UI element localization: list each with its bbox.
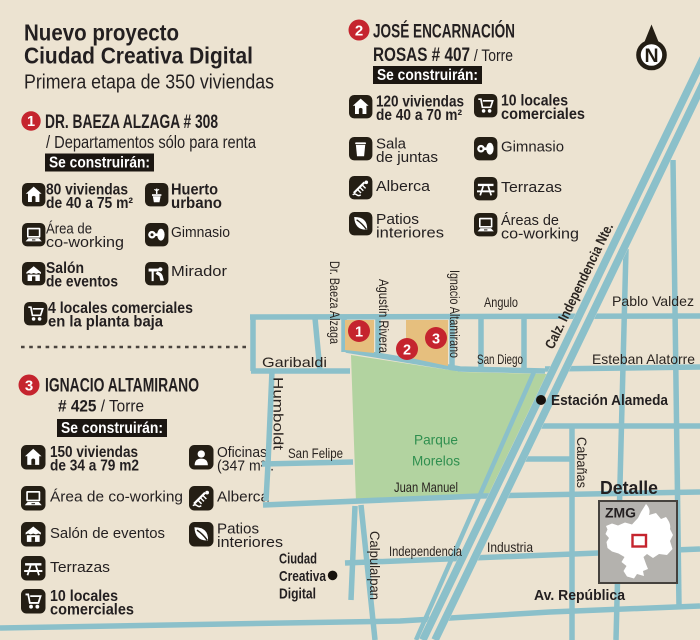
svg-text:Morelos: Morelos xyxy=(412,453,460,469)
svg-text:Creativa: Creativa xyxy=(279,568,327,585)
svg-text:2: 2 xyxy=(403,343,411,359)
svg-text:Se construirán:: Se construirán: xyxy=(61,420,163,437)
svg-text:de juntas: de juntas xyxy=(376,150,438,166)
svg-text:interiores: interiores xyxy=(376,226,444,242)
svg-text:Estación Alameda: Estación Alameda xyxy=(551,392,669,409)
svg-text:San Felipe: San Felipe xyxy=(288,446,343,461)
svg-text:Garibaldi: Garibaldi xyxy=(262,355,327,370)
svg-text:Agustín Rivera: Agustín Rivera xyxy=(376,279,391,353)
svg-text:San Diego: San Diego xyxy=(477,352,523,367)
svg-text:de 34 a 79 m2: de 34 a 79 m2 xyxy=(50,458,139,475)
svg-text:Se construirán:: Se construirán: xyxy=(377,67,478,84)
svg-text:de 40 a 75 m²: de 40 a 75 m² xyxy=(46,195,133,212)
svg-text:ZMG: ZMG xyxy=(605,506,636,521)
svg-text:Terrazas: Terrazas xyxy=(501,180,562,196)
svg-text:Gimnasio: Gimnasio xyxy=(501,140,564,156)
svg-text:IGNACIO ALTAMIRANO: IGNACIO ALTAMIRANO xyxy=(45,376,199,397)
svg-text:DR. BAEZA ALZAGA # 308: DR. BAEZA ALZAGA # 308 xyxy=(45,112,218,133)
svg-text:Salón de eventos: Salón de eventos xyxy=(50,526,165,542)
svg-text:Área de co-working: Área de co-working xyxy=(50,489,183,506)
svg-text:Gimnasio: Gimnasio xyxy=(171,225,230,241)
svg-text:Se construirán:: Se construirán: xyxy=(49,155,150,172)
svg-text:# 425 / Torre: # 425 / Torre xyxy=(58,397,144,416)
svg-text:de 40 a 70 m²: de 40 a 70 m² xyxy=(376,107,462,124)
svg-text:Esteban Alatorre: Esteban Alatorre xyxy=(592,352,695,367)
svg-text:comerciales: comerciales xyxy=(50,602,134,619)
svg-text:Mirador: Mirador xyxy=(171,264,227,280)
svg-text:Juan Manuel: Juan Manuel xyxy=(394,480,458,495)
svg-text:Ciudad Creativa Digital: Ciudad Creativa Digital xyxy=(24,43,253,69)
svg-text:3: 3 xyxy=(25,378,33,395)
svg-text:Cabañas: Cabañas xyxy=(574,437,589,488)
svg-text:Alberca: Alberca xyxy=(376,179,431,195)
svg-text:Ciudad: Ciudad xyxy=(279,551,317,568)
svg-text:comerciales: comerciales xyxy=(501,106,585,123)
svg-text:interiores: interiores xyxy=(217,535,283,551)
svg-text:Ignacio Altamirano: Ignacio Altamirano xyxy=(447,270,462,358)
svg-text:Pablo Valdez: Pablo Valdez xyxy=(612,294,694,309)
svg-text:Humboldt: Humboldt xyxy=(271,377,286,450)
svg-text:de eventos: de eventos xyxy=(46,274,118,291)
svg-text:Primera etapa de 350 viviendas: Primera etapa de 350 viviendas xyxy=(24,71,274,94)
svg-text:Av. República: Av. República xyxy=(534,587,626,604)
svg-text:Digital: Digital xyxy=(279,586,316,603)
svg-text:Angulo: Angulo xyxy=(484,295,518,310)
svg-text:2: 2 xyxy=(355,23,363,40)
svg-text:Independencia: Independencia xyxy=(389,544,462,559)
svg-text:Calpulalpan: Calpulalpan xyxy=(367,531,382,600)
svg-text:1: 1 xyxy=(27,114,35,130)
svg-text:Terrazas: Terrazas xyxy=(50,560,110,576)
svg-text:en la planta baja: en la planta baja xyxy=(48,314,163,331)
svg-text:urbano: urbano xyxy=(171,195,222,212)
svg-text:Parque: Parque xyxy=(414,432,458,448)
svg-text:co-working: co-working xyxy=(501,227,579,243)
svg-text:Detalle: Detalle xyxy=(600,478,658,498)
svg-text:3: 3 xyxy=(432,332,440,348)
svg-text:JOSÉ ENCARNACIÓN: JOSÉ ENCARNACIÓN xyxy=(373,21,515,43)
svg-text:co-working: co-working xyxy=(46,235,124,251)
svg-text:N: N xyxy=(644,45,658,67)
svg-text:1: 1 xyxy=(355,325,363,341)
svg-text:Dr. Baeza Alzaga: Dr. Baeza Alzaga xyxy=(327,261,342,344)
svg-text:Industria: Industria xyxy=(487,540,533,555)
svg-text:ROSAS # 407 / Torre: ROSAS # 407 / Torre xyxy=(373,45,513,66)
svg-text:Alberca: Alberca xyxy=(217,490,270,506)
svg-text:/ Departamentos sólo para rent: / Departamentos sólo para renta xyxy=(46,132,256,152)
